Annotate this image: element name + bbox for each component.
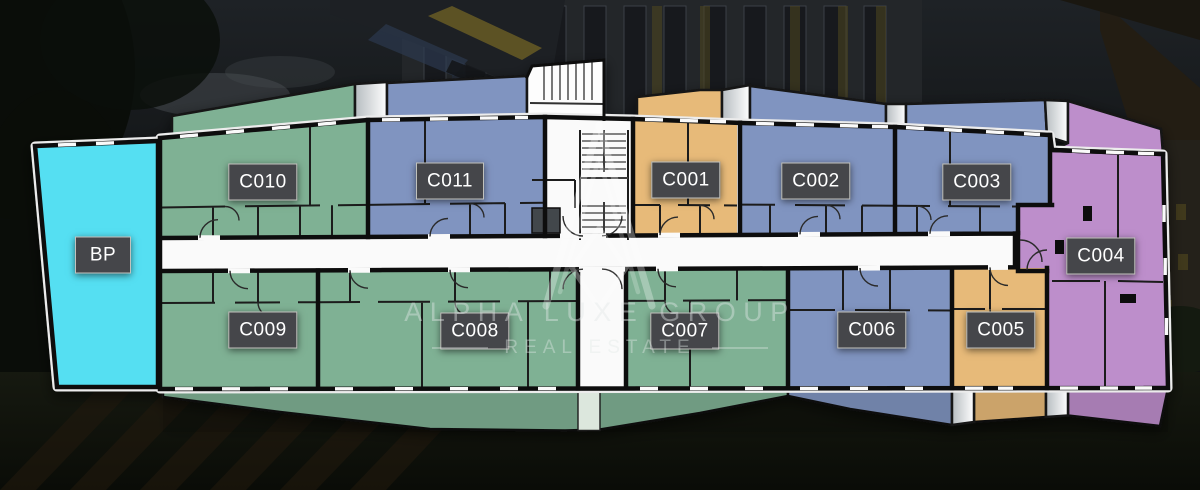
unit-label-c006[interactable]: C006 <box>837 312 906 349</box>
unit-label-c001[interactable]: C001 <box>651 162 720 199</box>
unit-label-c003[interactable]: C003 <box>942 164 1011 201</box>
unit-label-c011[interactable]: C011 <box>416 163 484 200</box>
unit-label-c007[interactable]: C007 <box>650 313 719 350</box>
unit-label-c002[interactable]: C002 <box>781 163 850 200</box>
unit-label-c010[interactable]: C010 <box>228 164 297 201</box>
floorplan-canvas <box>0 0 1200 490</box>
unit-label-c004[interactable]: C004 <box>1066 238 1135 275</box>
unit-label-bp[interactable]: BP <box>75 237 131 274</box>
entrance-walkway <box>578 387 600 431</box>
unit-label-c009[interactable]: C009 <box>228 312 297 349</box>
floorplan-screen: BP C010 C011 C001 C002 C003 C004 C009 C0… <box>0 0 1200 490</box>
unit-label-c005[interactable]: C005 <box>966 312 1035 349</box>
unit-label-c008[interactable]: C008 <box>440 313 509 350</box>
apron-shading <box>163 392 1168 432</box>
